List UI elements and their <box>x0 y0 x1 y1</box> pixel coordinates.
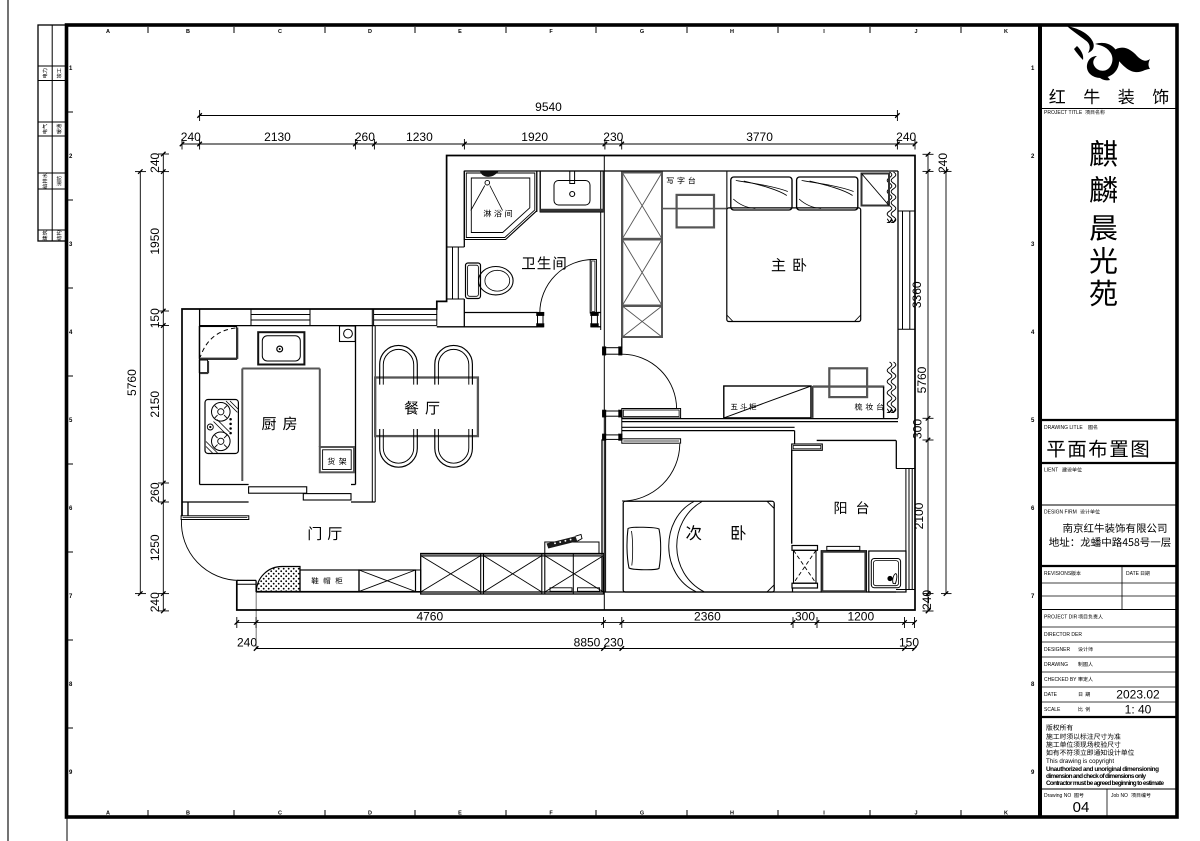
svg-text:Contractor must be agreed begi: Contractor must be agreed beginning to e… <box>1046 780 1164 787</box>
svg-text:A: A <box>106 811 110 817</box>
svg-text:Job NO: Job NO <box>1111 793 1128 799</box>
svg-text:1230: 1230 <box>406 130 433 144</box>
svg-text:PROJECT TITLE: PROJECT TITLE <box>1044 110 1083 116</box>
svg-text:DATE: DATE <box>1126 571 1140 577</box>
svg-text:2150: 2150 <box>148 391 162 418</box>
svg-text:300: 300 <box>795 610 815 624</box>
svg-text:230: 230 <box>603 636 623 650</box>
svg-text:K: K <box>1004 29 1008 35</box>
svg-text:DIRECTOR DER: DIRECTOR DER <box>1044 632 1082 638</box>
svg-text:DATE: DATE <box>1044 692 1058 698</box>
svg-text:8850: 8850 <box>574 636 601 650</box>
svg-text:dimension and check of dimensi: dimension and check of dimensions only <box>1046 773 1146 780</box>
svg-text:Drawing NO: Drawing NO <box>1044 793 1071 799</box>
svg-text:260: 260 <box>148 482 162 502</box>
svg-text:B: B <box>186 811 190 817</box>
svg-text:2130: 2130 <box>264 130 291 144</box>
svg-text:4760: 4760 <box>416 610 443 624</box>
svg-text:A: A <box>106 29 110 35</box>
svg-text:J: J <box>914 29 917 35</box>
svg-text:C: C <box>278 811 282 817</box>
svg-text:2023.02: 2023.02 <box>1116 688 1160 702</box>
svg-text:DESIGNER: DESIGNER <box>1044 647 1071 653</box>
svg-text:H: H <box>730 811 734 817</box>
svg-text:240: 240 <box>237 636 257 650</box>
svg-text:240: 240 <box>920 590 934 610</box>
svg-text:260: 260 <box>355 130 375 144</box>
svg-text:150: 150 <box>148 308 162 328</box>
svg-text:1250: 1250 <box>148 534 162 561</box>
svg-text:D: D <box>368 811 372 817</box>
svg-text:240: 240 <box>148 152 162 172</box>
svg-text:This drawing is copyright: This drawing is copyright <box>1046 758 1114 765</box>
svg-text:04: 04 <box>1073 799 1090 816</box>
svg-text:2100: 2100 <box>912 502 926 529</box>
svg-text:240: 240 <box>148 592 162 612</box>
svg-text:C: C <box>278 29 282 35</box>
svg-text:3770: 3770 <box>746 130 773 144</box>
svg-text:Unauthorized and unoriginal di: Unauthorized and unoriginal dimensioning <box>1046 766 1159 773</box>
svg-text:1: 40: 1: 40 <box>1125 703 1152 717</box>
svg-text:J: J <box>914 811 917 817</box>
svg-text:REVISIONS: REVISIONS <box>1044 571 1072 577</box>
svg-text:230: 230 <box>603 130 623 144</box>
svg-text:5760: 5760 <box>915 366 929 393</box>
svg-text:LIENT: LIENT <box>1044 468 1058 474</box>
svg-text:2360: 2360 <box>694 610 721 624</box>
svg-text:DRAWING LITLE: DRAWING LITLE <box>1044 425 1083 431</box>
svg-text:150: 150 <box>899 636 919 650</box>
svg-text:DRAWING: DRAWING <box>1044 662 1068 668</box>
svg-text:K: K <box>1004 811 1008 817</box>
svg-text:3360: 3360 <box>910 281 924 308</box>
svg-text:E: E <box>458 811 462 817</box>
svg-text:B: B <box>186 29 190 35</box>
svg-text:SCALE: SCALE <box>1044 707 1061 713</box>
svg-text:E: E <box>458 29 462 35</box>
svg-text:PROJECT DIR: PROJECT DIR <box>1044 615 1078 621</box>
svg-text:G: G <box>640 29 644 35</box>
svg-text:240: 240 <box>896 130 916 144</box>
svg-text:1200: 1200 <box>847 610 874 624</box>
svg-text:1920: 1920 <box>521 130 548 144</box>
svg-text:D: D <box>368 29 372 35</box>
svg-text:240: 240 <box>181 130 201 144</box>
svg-text:G: G <box>640 811 644 817</box>
svg-text:9540: 9540 <box>535 100 562 114</box>
svg-text:CHECKED BY: CHECKED BY <box>1044 677 1077 683</box>
svg-text:H: H <box>730 29 734 35</box>
svg-text:1950: 1950 <box>148 228 162 255</box>
svg-text:300: 300 <box>911 419 925 439</box>
svg-text:5760: 5760 <box>125 369 139 396</box>
svg-text:DESIGN FIRM: DESIGN FIRM <box>1044 510 1077 516</box>
